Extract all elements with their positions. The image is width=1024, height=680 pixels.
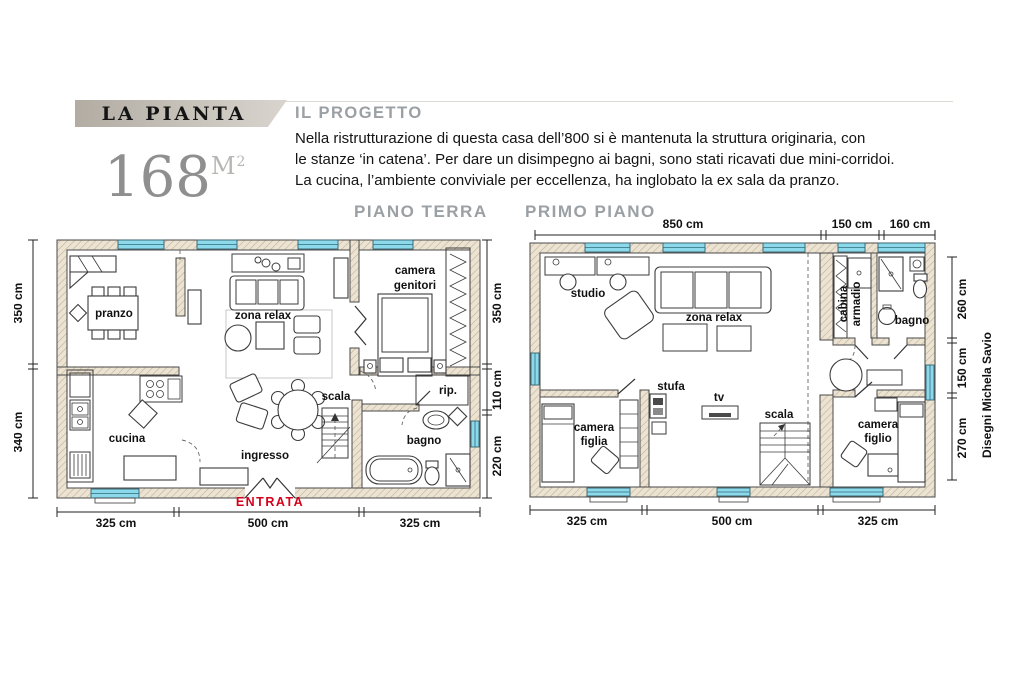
label-cabina-1: cabina (838, 285, 850, 322)
svg-text:350 cm: 350 cm (14, 283, 25, 324)
label-figlio-2: figlio (864, 433, 891, 445)
label-ingresso: ingresso (241, 450, 289, 462)
svg-text:260 cm: 260 cm (955, 279, 969, 320)
tv-furniture (702, 406, 738, 419)
area-unit: M2 (211, 154, 247, 178)
svg-text:110 cm: 110 cm (490, 370, 504, 410)
ground-dim-bottom: 325 cm 500 cm 325 cm (57, 507, 480, 530)
label-entrata: ENTRATA (236, 495, 304, 509)
staircase-first (760, 423, 810, 485)
label-bagno-first: bagno (895, 315, 930, 327)
label-bagno-ground: bagno (407, 435, 442, 447)
label-figlia-2: figlia (581, 436, 608, 448)
kitchen-furniture (67, 370, 200, 482)
ground-dim-right: 350 cm 110 cm 220 cm (482, 240, 504, 498)
stove-furniture (650, 394, 666, 434)
ground-floor-plan: pranzo cucina (14, 230, 506, 532)
project-intro: IL PROGETTO Nella ristrutturazione di qu… (295, 104, 895, 191)
label-figlia-1: camera (574, 422, 615, 434)
illustrator-credit: Disegni Michela Savio (980, 295, 994, 495)
entry-hall-furniture (200, 373, 325, 485)
first-floor-plan: studio zona relax stufa tv (516, 212, 986, 532)
first-dim-top: 850 cm 150 cm 160 cm (535, 217, 935, 240)
label-cabina-2: armadio (851, 282, 863, 327)
project-heading: IL PROGETTO (295, 104, 895, 123)
svg-text:325 cm: 325 cm (96, 516, 137, 530)
svg-text:150 cm: 150 cm (955, 348, 969, 389)
svg-text:325 cm: 325 cm (567, 514, 608, 528)
label-figlio-1: camera (858, 419, 899, 431)
section-title: LA PIANTA (102, 103, 261, 125)
svg-text:220 cm: 220 cm (490, 436, 504, 477)
ground-dim-left: 350 cm 340 cm (14, 240, 38, 498)
label-cucina: cucina (109, 433, 146, 445)
label-studio: studio (571, 288, 606, 300)
svg-text:850 cm: 850 cm (663, 217, 704, 231)
svg-text:325 cm: 325 cm (400, 516, 441, 530)
svg-text:350 cm: 350 cm (490, 283, 504, 324)
svg-text:500 cm: 500 cm (248, 516, 289, 530)
svg-text:160 cm: 160 cm (890, 217, 931, 231)
section-banner: LA PIANTA (75, 100, 287, 127)
first-dim-bottom: 325 cm 500 cm 325 cm (530, 505, 935, 528)
label-tv: tv (714, 392, 725, 404)
landing-furniture (830, 359, 902, 391)
label-camera-genitori-1: camera (395, 265, 436, 277)
label-scala-first: scala (765, 409, 794, 421)
first-dim-right: 260 cm 150 cm 270 cm (947, 257, 969, 480)
svg-text:340 cm: 340 cm (14, 412, 25, 453)
label-zona-relax-first: zona relax (686, 312, 743, 324)
label-stufa: stufa (657, 381, 685, 393)
area-number: 168 (104, 150, 211, 206)
label-zona-relax-ground: zona relax (235, 310, 292, 322)
label-scala-ground: scala (322, 391, 351, 403)
staircase-ground (317, 408, 350, 463)
dining-room-furniture (70, 256, 138, 339)
project-paragraph: Nella ristrutturazione di questa casa de… (295, 128, 895, 191)
svg-text:270 cm: 270 cm (955, 418, 969, 459)
ground-floor-heading: PIANO TERRA (354, 202, 488, 222)
relax-zone-first-furniture (655, 267, 771, 351)
label-rip: rip. (439, 385, 457, 397)
svg-text:500 cm: 500 cm (712, 514, 753, 528)
label-camera-genitori-2: genitori (394, 280, 436, 292)
area-figure: 168 M2 (104, 150, 246, 206)
svg-text:150 cm: 150 cm (832, 217, 873, 231)
magazine-page: LA PIANTA 168 M2 IL PROGETTO Nella ristr… (0, 0, 1024, 680)
svg-text:325 cm: 325 cm (858, 514, 899, 528)
label-pranzo: pranzo (95, 308, 133, 320)
